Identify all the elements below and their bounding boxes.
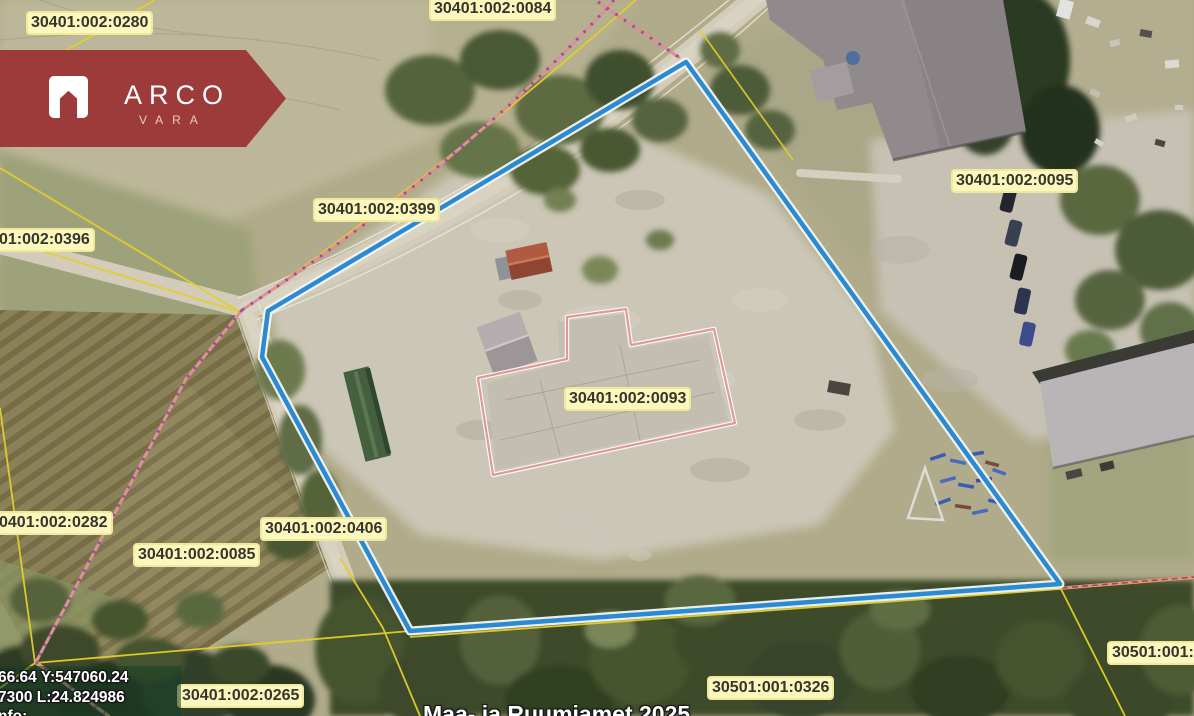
- coordinate-latlon: 7300 L:24.824986: [0, 689, 125, 708]
- brand-name: ARCO: [124, 80, 230, 111]
- parcel-label-0280: 30401:002:0280: [26, 11, 153, 35]
- parcel-label-0326: 30501:001:0326: [707, 676, 834, 700]
- parcel-label-0282: 0401:002:0282: [0, 511, 113, 535]
- map-attribution: Maa- ja Ruumiamet 2025: [423, 701, 690, 716]
- parcel-label-0406: 30401:002:0406: [260, 517, 387, 541]
- parcel-label-0399: 30401:002:0399: [313, 198, 440, 222]
- house-icon: [49, 76, 88, 118]
- brand-logo: [49, 76, 88, 118]
- parcel-label-30501: 30501:001:0: [1107, 641, 1194, 665]
- coordinate-xy: 66.64 Y:547060.24: [0, 669, 128, 688]
- map-canvas[interactable]: 30401:002:0280 30401:002:0084 30401:002:…: [0, 0, 1194, 716]
- parcel-label-0095: 30401:002:0095: [951, 169, 1078, 193]
- parcel-label-0085: 30401:002:0085: [133, 543, 260, 567]
- parcel-label-0093: 30401:002:0093: [564, 387, 691, 411]
- parcel-label-0396: 01:002:0396: [0, 228, 95, 252]
- brand-ribbon: ARCO VARA: [0, 50, 286, 147]
- brand-subname: VARA: [139, 113, 207, 127]
- coordinate-info: nfo:: [0, 708, 27, 716]
- parcel-label-0265: 30401:002:0265: [177, 684, 304, 708]
- lattice-tower: [908, 468, 943, 520]
- parcel-label-0084: 30401:002:0084: [429, 0, 556, 21]
